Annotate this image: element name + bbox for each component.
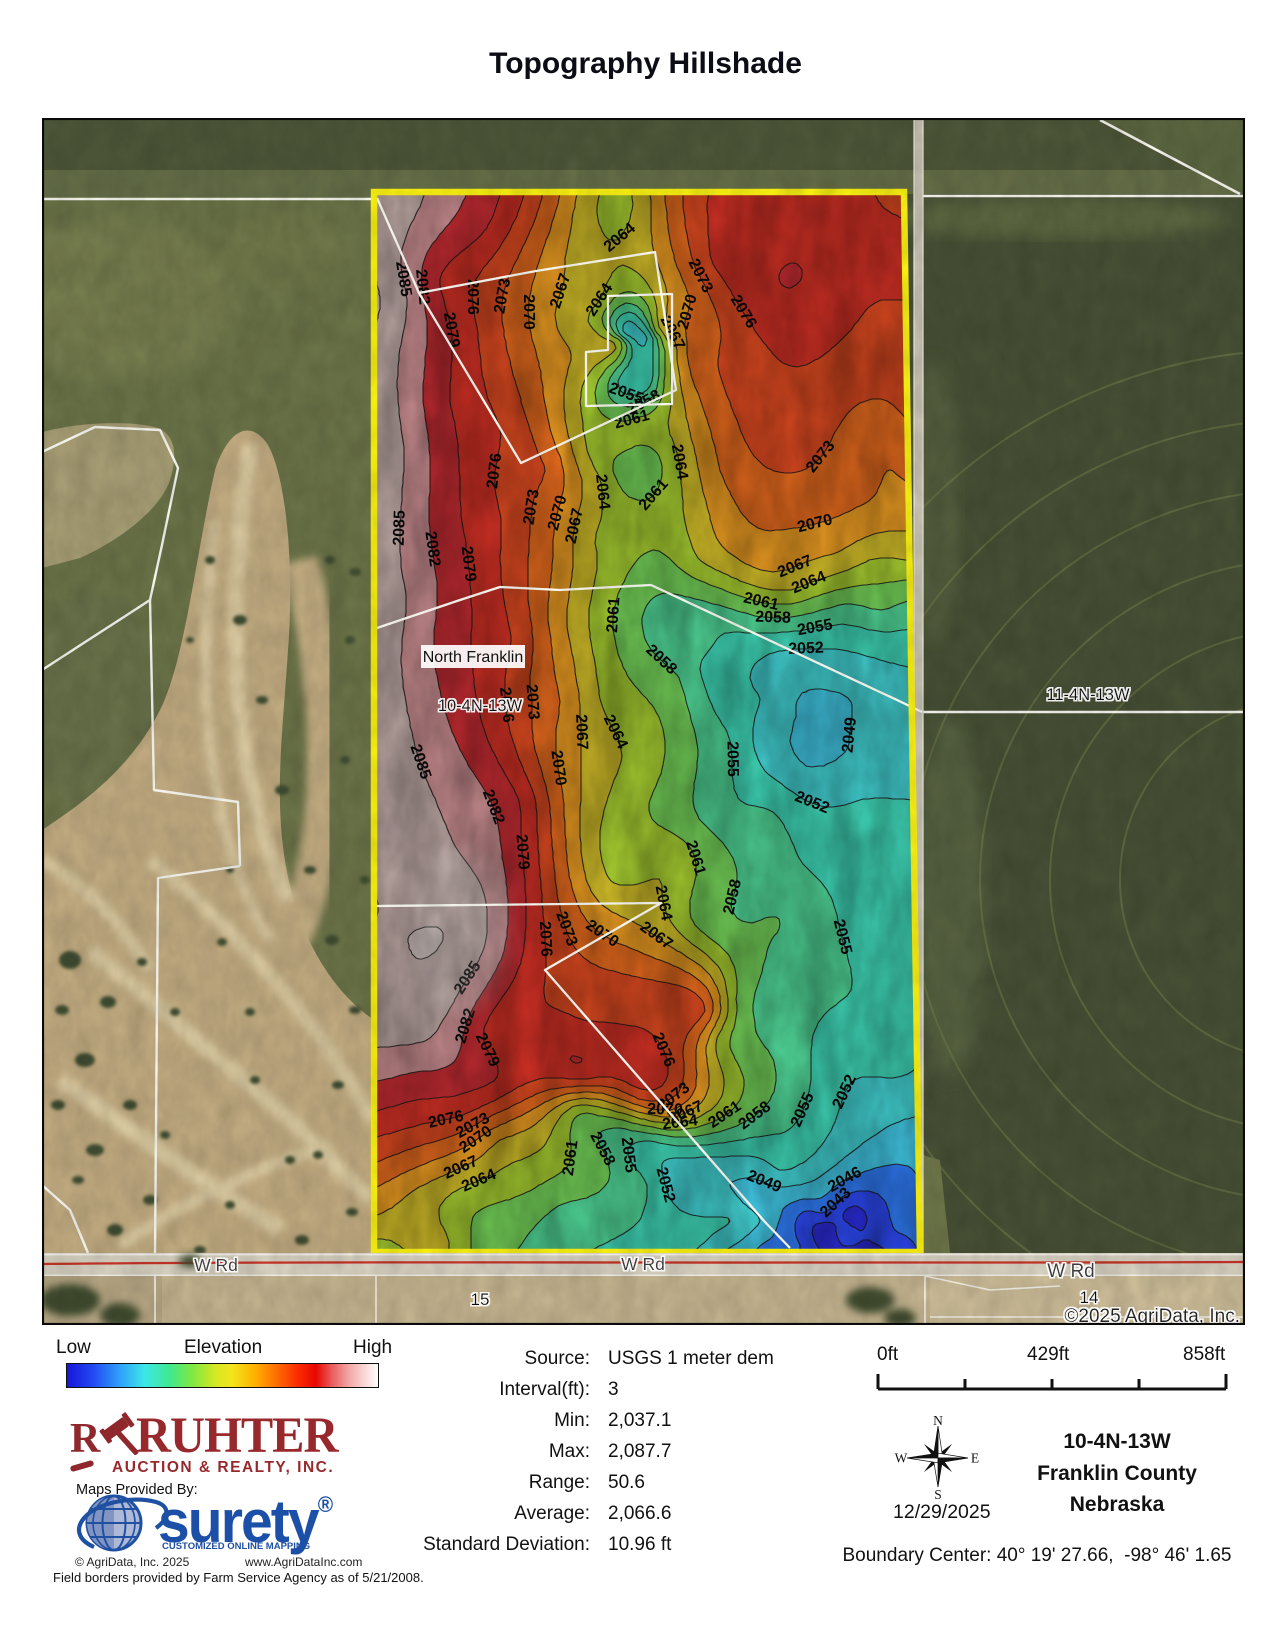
svg-text:©2025 AgriData, Inc.: ©2025 AgriData, Inc. bbox=[1064, 1306, 1240, 1325]
svg-text:14: 14 bbox=[1080, 1288, 1099, 1307]
svg-text:R: R bbox=[70, 1416, 101, 1462]
svg-text:E: E bbox=[971, 1451, 979, 1466]
svg-text:11-4N-13W: 11-4N-13W bbox=[1046, 686, 1130, 704]
svg-text:N: N bbox=[933, 1413, 943, 1428]
svg-text:S: S bbox=[934, 1487, 942, 1502]
svg-text:North Franklin: North Franklin bbox=[423, 649, 523, 666]
svg-text:W Rd: W Rd bbox=[621, 1254, 665, 1274]
svg-text:10-4N-13W: 10-4N-13W bbox=[438, 697, 523, 715]
svg-text:15: 15 bbox=[471, 1290, 490, 1309]
svg-text:W: W bbox=[895, 1451, 908, 1466]
svg-text:W Rd: W Rd bbox=[194, 1255, 238, 1275]
svg-text:W Rd: W Rd bbox=[1047, 1261, 1095, 1282]
